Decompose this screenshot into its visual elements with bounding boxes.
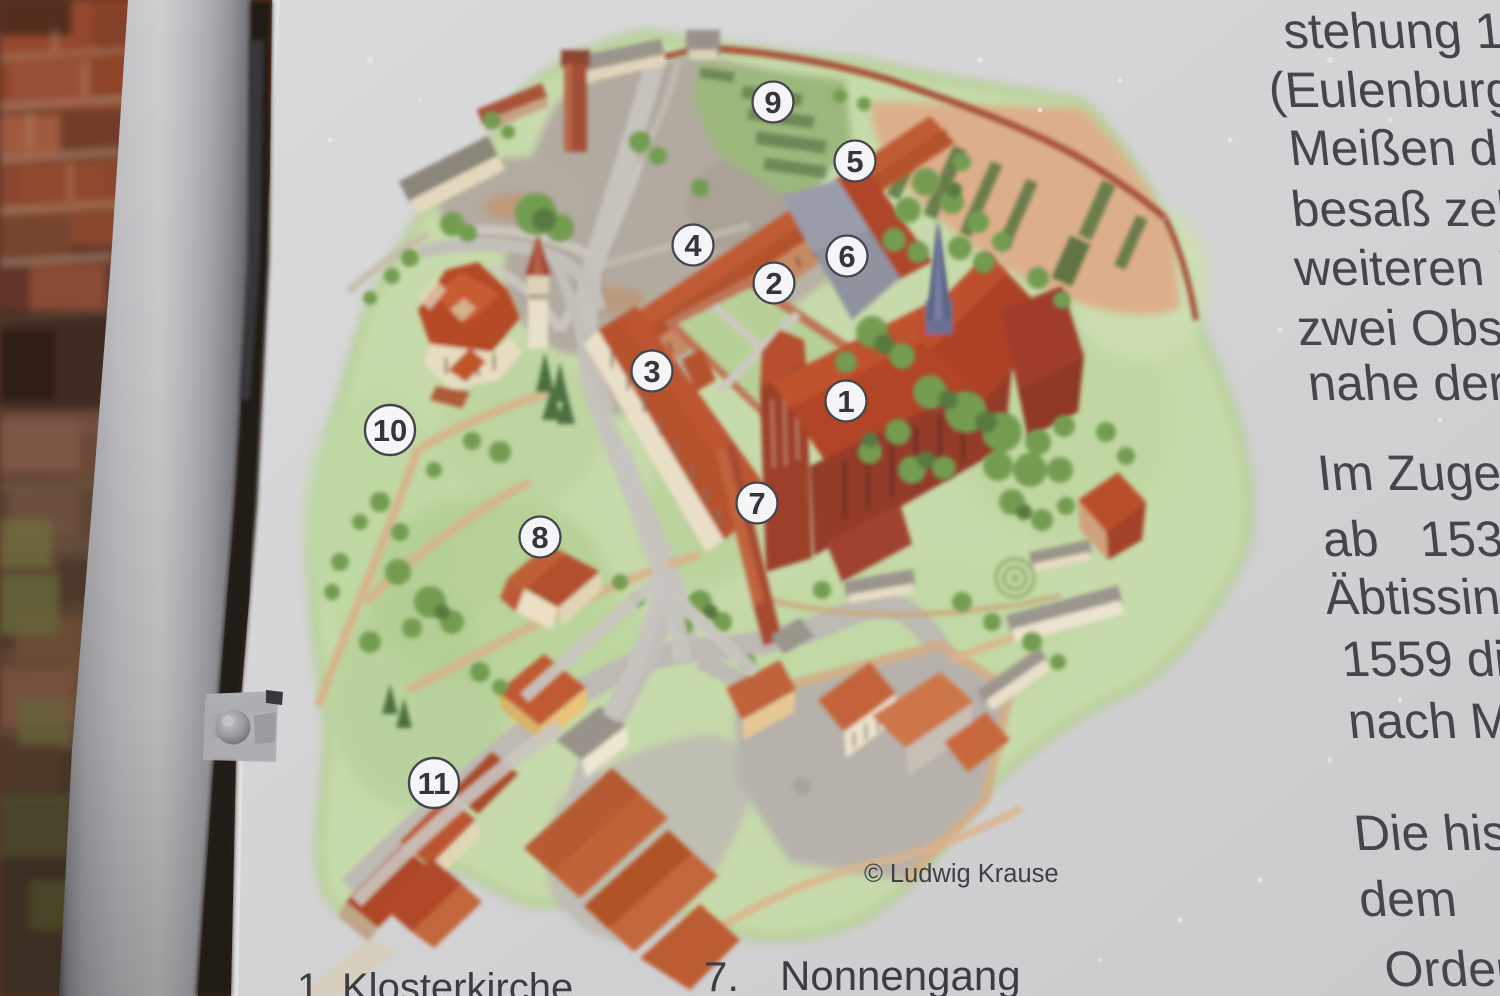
svg-text:besaß zeh: besaß zeh bbox=[1288, 181, 1500, 237]
svg-text:5: 5 bbox=[846, 144, 863, 179]
svg-text:7: 7 bbox=[748, 486, 765, 521]
svg-text:Die hist: Die hist bbox=[1351, 805, 1500, 861]
svg-text:3: 3 bbox=[643, 354, 660, 389]
svg-text:nahe der S: nahe der S bbox=[1305, 355, 1500, 411]
svg-text:(Eulenburg: (Eulenburg bbox=[1266, 62, 1500, 118]
svg-text:Klosterkirche: Klosterkirche bbox=[342, 966, 573, 996]
svg-text:Äbtissin A: Äbtissin A bbox=[1322, 569, 1500, 625]
svg-text:9: 9 bbox=[764, 85, 781, 120]
svg-text:Nonnengang: Nonnengang bbox=[780, 952, 1021, 996]
svg-text:© Ludwig Krause: © Ludwig Krause bbox=[864, 860, 1059, 888]
svg-text:ab 1538: ab 1538 bbox=[1320, 511, 1500, 567]
svg-text:1: 1 bbox=[837, 384, 854, 419]
svg-text:stehung 12: stehung 12 bbox=[1280, 3, 1500, 59]
svg-text:Ordensl: Ordensl bbox=[1382, 941, 1500, 996]
svg-text:10: 10 bbox=[373, 413, 407, 448]
svg-text:6: 6 bbox=[838, 239, 855, 274]
svg-text:1559 die: 1559 die bbox=[1338, 631, 1500, 687]
svg-text:11: 11 bbox=[418, 766, 451, 801]
svg-text:nach Mei: nach Mei bbox=[1345, 693, 1500, 749]
svg-text:dem: dem bbox=[1356, 871, 1459, 927]
svg-text:2: 2 bbox=[765, 266, 782, 301]
svg-text:Meißen d: Meißen d bbox=[1286, 120, 1500, 176]
svg-text:zwei Obstg: zwei Obstg bbox=[1294, 300, 1500, 356]
svg-text:7.: 7. bbox=[704, 953, 739, 996]
svg-text:1.: 1. bbox=[297, 966, 330, 996]
svg-text:8: 8 bbox=[531, 520, 548, 555]
svg-text:4: 4 bbox=[684, 228, 702, 263]
svg-text:weiteren B: weiteren B bbox=[1291, 240, 1500, 296]
svg-text:Im Zuge d: Im Zuge d bbox=[1315, 445, 1500, 501]
